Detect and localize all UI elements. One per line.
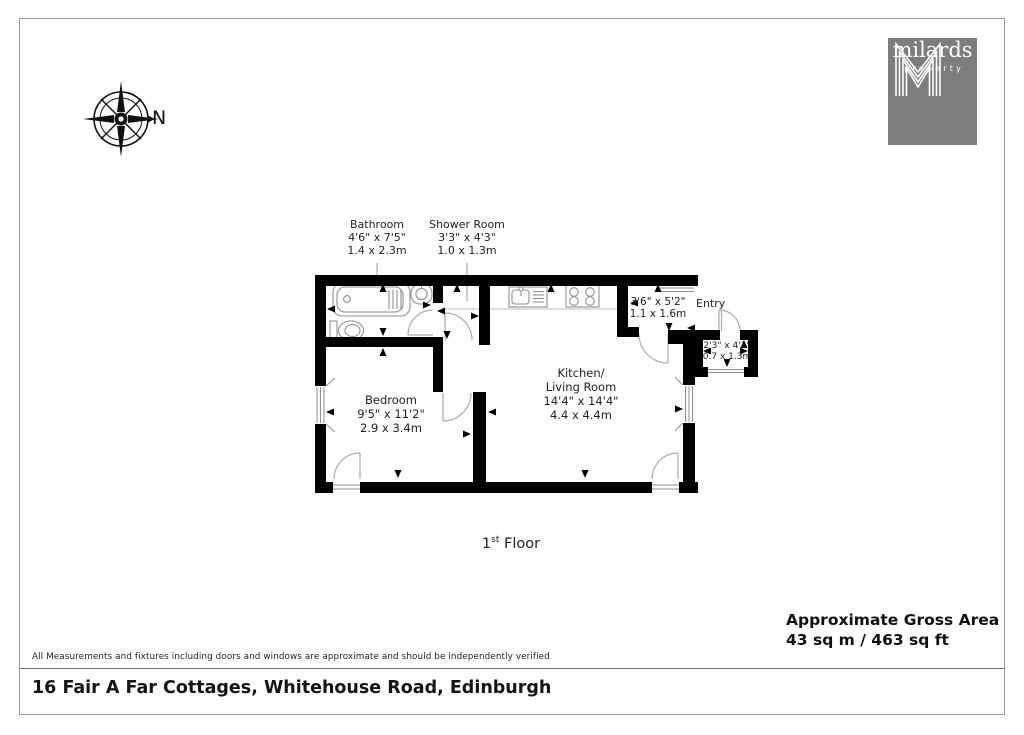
room-dims-imperial: 3'6" x 5'2" <box>608 296 708 308</box>
fixtures <box>330 283 599 340</box>
shower-door-arc <box>445 313 472 340</box>
room-dims-metric: 0.7 x 1.3m <box>693 352 761 363</box>
bathroom-sink-icon <box>411 284 432 304</box>
entry-porch-label: 2'3" x 4'3" 0.7 x 1.3m <box>693 341 761 363</box>
disclaimer-text: All Measurements and fixtures including … <box>32 652 550 662</box>
bedroom-window-door-arc <box>334 453 360 479</box>
floor-number: 1 <box>482 536 491 552</box>
gross-area: Approximate Gross Area 43 sq m / 463 sq … <box>786 610 999 650</box>
compass-icon <box>83 81 159 157</box>
agency-logo: milards property <box>888 38 977 145</box>
room-dims-metric: 1.4 x 2.3m <box>327 244 427 257</box>
hallway-door-arc <box>639 334 668 363</box>
room-name: Entry <box>696 297 741 310</box>
room-dims-imperial: 3'3" x 4'3" <box>417 231 517 244</box>
room-dims-imperial: 14'4" x 14'4" <box>531 394 631 408</box>
room-name: Kitchen/ <box>531 366 631 380</box>
room-dims-metric: 4.4 x 4.4m <box>531 408 631 422</box>
bedroom-french-window <box>333 482 360 493</box>
entry-label: Entry <box>696 297 741 310</box>
room-dims-metric: 1.1 x 1.6m <box>608 308 708 320</box>
entry-door-arc <box>719 310 740 331</box>
bedroom-door-arc <box>443 393 471 421</box>
hallway-label: 3'6" x 5'2" 1.1 x 1.6m <box>608 296 708 320</box>
room-name: Bedroom <box>341 393 441 407</box>
bathtub-icon <box>333 283 410 316</box>
room-dims-imperial: 2'3" x 4'3" <box>693 341 761 352</box>
bedroom-label: Bedroom 9'5" x 11'2" 2.9 x 3.4m <box>341 393 441 435</box>
gross-area-value: 43 sq m / 463 sq ft <box>786 630 999 650</box>
room-name: Living Room <box>531 380 631 394</box>
bedroom-window <box>314 378 335 432</box>
floor-title: 1st Floor <box>461 535 561 552</box>
room-name: Bathroom <box>327 218 427 231</box>
bathroom-label: Bathroom 4'6" x 7'5" 1.4 x 2.3m <box>327 218 427 257</box>
gross-area-title: Approximate Gross Area <box>786 610 999 630</box>
property-address: 16 Fair A Far Cottages, Whitehouse Road,… <box>32 678 551 698</box>
bathroom-door-arc <box>408 310 433 335</box>
compass-north-label: N <box>152 107 166 129</box>
kitchen-french-window <box>652 482 679 493</box>
room-dims-imperial: 9'5" x 11'2" <box>341 407 441 421</box>
kitchen-living-label: Kitchen/ Living Room 14'4" x 14'4" 4.4 x… <box>531 366 631 422</box>
shower-room-label: Shower Room 3'3" x 4'3" 1.0 x 1.3m <box>417 218 517 257</box>
floor-word: Floor <box>499 536 540 552</box>
kitchen-window <box>675 377 696 431</box>
milards-monogram-icon <box>888 38 948 100</box>
kitchen-window-door-arc <box>652 453 678 479</box>
hob-icon <box>566 285 599 307</box>
room-dims-imperial: 4'6" x 7'5" <box>327 231 427 244</box>
kitchen-sink-icon <box>509 287 547 307</box>
room-dims-metric: 1.0 x 1.3m <box>417 244 517 257</box>
floorplan-page: { "compass": { "label": "N" }, "logo": {… <box>0 0 1024 735</box>
room-dims-metric: 2.9 x 3.4m <box>341 421 441 435</box>
room-name: Shower Room <box>417 218 517 231</box>
